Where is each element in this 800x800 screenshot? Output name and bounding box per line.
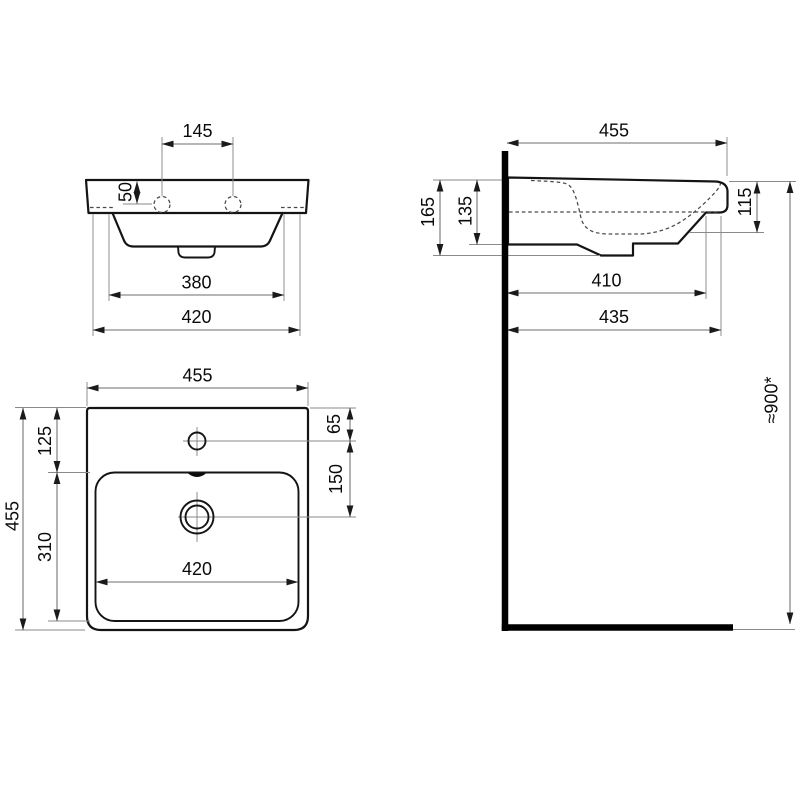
plan-bowl-width-label: 420 (182, 559, 212, 579)
side-lower-edge-depth-label: 435 (599, 307, 629, 327)
plan-overall-width-label: 455 (182, 366, 212, 386)
front-tap-offset-label: 50 (116, 182, 136, 202)
front-bowl (113, 213, 283, 247)
plan-view: 455 125 310 455 65 150 (3, 366, 357, 631)
dim-plan-overall-width: 455 (87, 366, 308, 407)
side-sink-profile (508, 178, 728, 256)
plan-back-to-tap-label: 65 (324, 414, 344, 434)
dim-side-depth: 455 (507, 121, 727, 177)
dim-side-basin-height: 135 (456, 180, 504, 245)
washbasin-technical-drawing: 145 50 380 420 455 (0, 0, 800, 800)
side-view: 455 165 135 115 410 (418, 121, 796, 632)
front-base-width-label: 420 (181, 307, 211, 327)
dim-plan-overall-depth: 455 (3, 408, 24, 630)
side-overall-height-label: 165 (418, 197, 438, 227)
side-basin-height-label: 135 (456, 196, 476, 226)
dim-plan-back-to-tap: 65 (324, 408, 350, 441)
side-underside-depth-label: 410 (591, 271, 621, 291)
front-view: 145 50 380 420 (86, 121, 309, 336)
front-outlet-width-label: 380 (181, 273, 211, 293)
side-mounting-height-label: ≈900* (762, 377, 782, 424)
plan-back-to-bowl-label: 125 (35, 426, 55, 456)
plan-tap-to-drain-label: 150 (326, 464, 346, 494)
dim-plan-bowl-depth: 310 (35, 473, 57, 622)
side-depth-label: 455 (599, 121, 629, 141)
dim-plan-back-to-bowl: 125 (35, 408, 57, 473)
side-front-edge-height-label: 115 (735, 188, 755, 217)
plan-bowl-depth-label: 310 (35, 532, 55, 562)
dim-side-mounting-height: ≈900* (729, 182, 796, 625)
front-tap-spacing-label: 145 (182, 121, 212, 141)
dim-plan-tap-to-drain: 150 (326, 441, 350, 517)
plan-overall-depth-label: 455 (3, 501, 23, 531)
front-drain-box (178, 247, 215, 258)
